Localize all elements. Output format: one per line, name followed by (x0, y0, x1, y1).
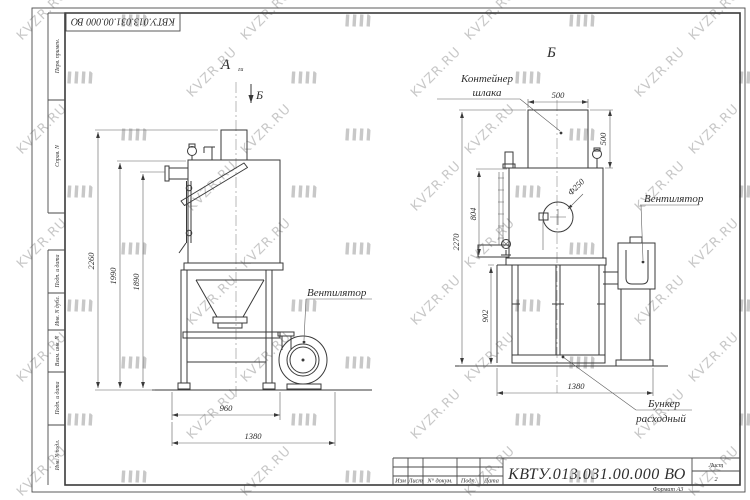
view-b-title: Б (546, 45, 556, 61)
dim-a-total-width: 1380 (245, 431, 263, 441)
tb-col-data: Дата (483, 478, 499, 485)
view-a-dimensions: 2260 1990 1890 960 1380 (86, 130, 335, 446)
strip-label-vzam-inv: Взам. инв. N (55, 335, 61, 366)
tb-col-list: Лист (407, 478, 423, 485)
port-circle (539, 202, 573, 250)
dim-a-total-height: 2260 (86, 252, 96, 270)
dim-b-body-height: 804 (468, 207, 478, 221)
dim-a-body-height: 1990 (108, 267, 118, 285)
gauge-b (593, 148, 602, 168)
view-b: 500 500 2270 804 902 1380 Ф250 К (437, 45, 704, 425)
dim-b-port-diameter: Ф250 (565, 176, 586, 197)
dim-b-total-width: 1380 (568, 381, 586, 391)
dim-b-total-height: 2270 (451, 233, 461, 251)
dim-b-container-height: 500 (598, 132, 608, 146)
dim-b-frame-height: 902 (480, 309, 490, 323)
fan-callout-a: Вентилятор (303, 287, 372, 343)
strip-label-inv-dubl: Инв. N дубл. (54, 296, 61, 327)
strip-label-inv-podl: Инв. N подл. (54, 440, 61, 471)
ladder (498, 172, 504, 245)
tb-sheet-value: 2 (714, 476, 717, 483)
fan-a (278, 332, 327, 389)
view-a-outline (165, 130, 283, 389)
tb-col-podp: Подп. (460, 478, 476, 485)
tb-doc-number: КВТУ.013.031.00.000 ВО (507, 466, 686, 483)
top-stamp-number: КВТУ.013.031.00.000 ВО (71, 16, 176, 27)
container-callout: Контейнер шлака (437, 73, 562, 134)
strip-label-podp-data-1: Подп. и дата (54, 254, 61, 288)
title-block: Изм Лист N° докум. Подп. Дата КВТУ.013.0… (393, 458, 740, 493)
view-b-outline (478, 110, 606, 363)
top-stamp: КВТУ.013.031.00.000 ВО (66, 13, 180, 31)
container-label-line2: шлака (472, 87, 502, 99)
dim-b-container-width: 500 (552, 90, 566, 100)
container-label-line1: Контейнер (460, 73, 514, 85)
strip-label-podp-data-2: Подп. и дата (54, 381, 61, 415)
section-mark-b-letter: Б (255, 88, 263, 102)
strip-label-sprav-n: Справ. N (55, 144, 61, 167)
hopper-label-line1: Бункер (647, 398, 680, 410)
dim-a-nozzle-height: 1890 (131, 273, 141, 291)
gauge-a (188, 144, 197, 160)
tb-col-izm: Изм (394, 478, 406, 485)
fan-b (603, 237, 655, 366)
hopper-label-line2: расходный (635, 413, 686, 425)
engineering-drawing-canvas: Перв. примен. Справ. N Подп. и дата Инв.… (0, 0, 750, 500)
strip-label-perv-primen: Перв. примен. (55, 39, 61, 74)
fan-label-b: Вентилятор (644, 193, 704, 205)
tb-sheet-label: Лист (708, 462, 724, 469)
view-a-title: А (220, 57, 231, 73)
fan-callout-b: Вентилятор (640, 193, 704, 263)
tb-col-docnum: N° докум. (426, 478, 452, 485)
view-a-title-sub: ги (238, 67, 243, 73)
fan-label-a: Вентилятор (307, 287, 367, 299)
drawing-sheet: KVZR.RUKVZR.RUKVZR.RUKVZR.RUKVZR.RUKVZR.… (0, 0, 750, 500)
dim-a-frame-width: 960 (220, 403, 234, 413)
format-note: Формат А3 (653, 486, 684, 493)
left-strip-labels: Перв. примен. Справ. N Подп. и дата Инв.… (54, 39, 61, 471)
section-mark-b: Б (251, 84, 263, 103)
view-a: 2260 1990 1890 960 1380 Вентилятор А ги … (86, 57, 372, 446)
